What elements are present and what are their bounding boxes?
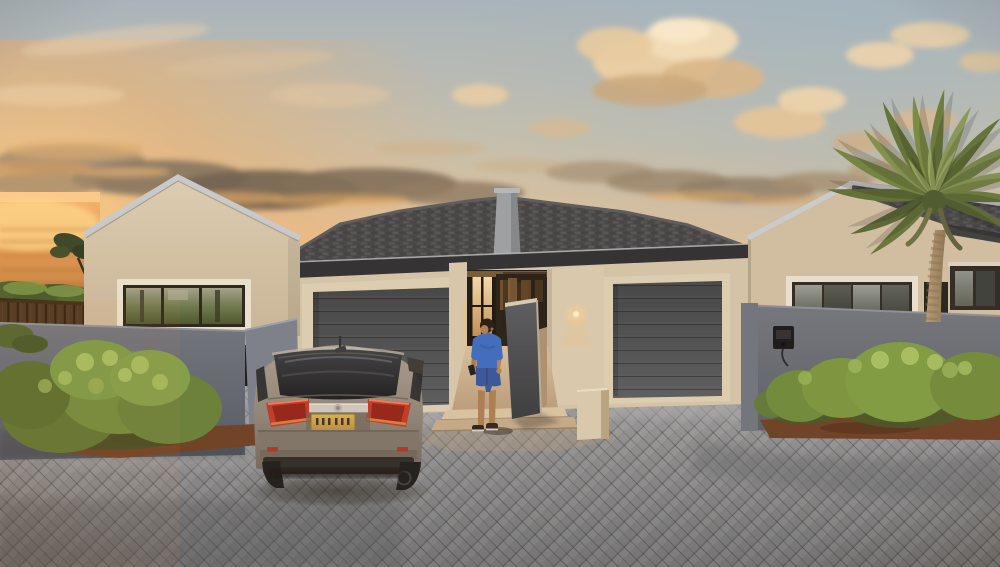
house-sunset-photo xyxy=(0,0,1000,567)
photo-stage xyxy=(0,0,1000,567)
atmosphere xyxy=(0,0,1000,567)
